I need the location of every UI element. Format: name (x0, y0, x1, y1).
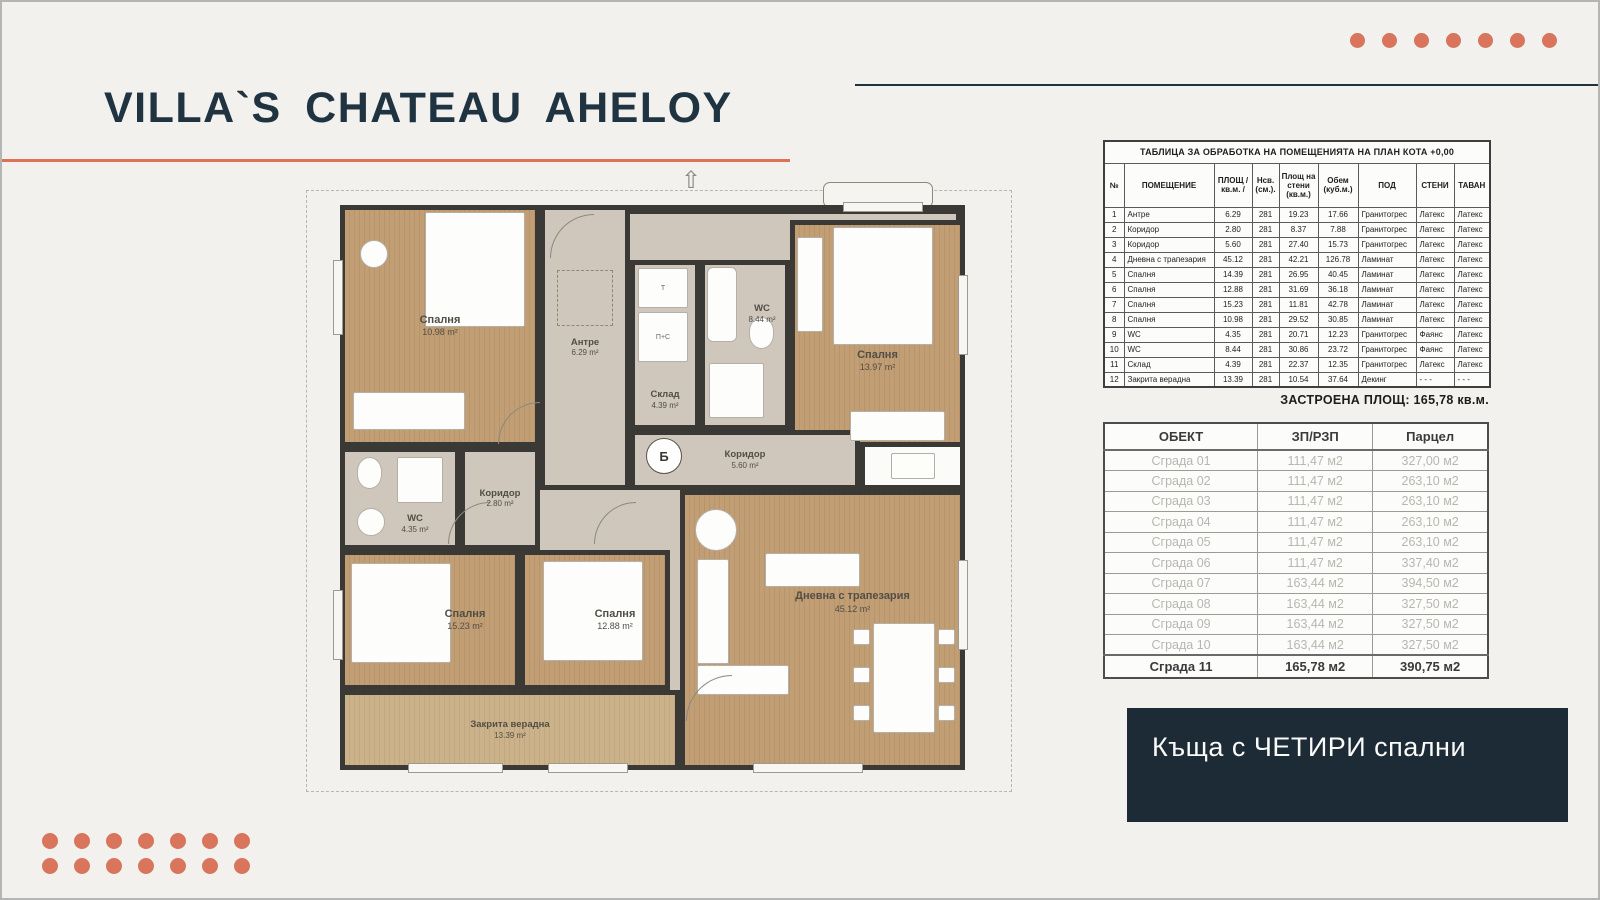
toilet (749, 317, 774, 349)
cell-height: 281 (1252, 342, 1279, 357)
room-finish-table: ТАБЛИЦА ЗА ОБРАБОТКА НА ПОМЕЩЕНИЯТА НА П… (1103, 140, 1491, 388)
cell-volume: 12.23 (1318, 327, 1358, 342)
table-row: 1 Антре 6.29 281 19.23 17.66 Гранитогрес… (1104, 207, 1490, 222)
cell-ceiling-finish: Латекс (1454, 252, 1490, 267)
cell-plot-area: 263,10 м2 (1373, 471, 1488, 492)
cell-building: Сграда 10 (1104, 635, 1258, 656)
cell-wall-area: 8.37 (1279, 222, 1318, 237)
cell-height: 281 (1252, 207, 1279, 222)
cell-ceiling-finish: Латекс (1454, 297, 1490, 312)
room-storage: Т П+С Склад4.39 m² (630, 260, 700, 430)
cell-room: Спалня (1124, 267, 1214, 282)
room-name: Коридор (480, 488, 521, 500)
double-bed (833, 227, 933, 345)
stool (360, 240, 388, 268)
buildings-table-section: ОБЕКТ ЗП/РЗП Парцел Сграда 01 111,47 м2 … (1103, 422, 1489, 679)
table-row: Сграда 07 163,44 м2 394,50 м2 (1104, 573, 1488, 594)
table-title: ТАБЛИЦА ЗА ОБРАБОТКА НА ПОМЕЩЕНИЯТА НА П… (1104, 141, 1490, 163)
cell-ceiling-finish: Латекс (1454, 207, 1490, 222)
bed (425, 212, 525, 327)
cell-built-area: 163,44 м2 (1258, 635, 1373, 656)
cell-height: 281 (1252, 282, 1279, 297)
decorative-dot (1510, 33, 1525, 48)
room-area: 4.39 m² (651, 401, 678, 411)
chair (853, 667, 870, 683)
cell-plot-area: 263,10 м2 (1373, 491, 1488, 512)
tagline-text: Къща с ЧЕТИРИ спални (1127, 708, 1568, 763)
room-name: Склад (650, 389, 679, 401)
room-area: 13.39 m² (494, 731, 526, 741)
cell-floor-finish: Гранитогрес (1358, 207, 1416, 222)
cell-building: Сграда 07 (1104, 573, 1258, 594)
cell-height: 281 (1252, 327, 1279, 342)
cell-ceiling-finish: Латекс (1454, 357, 1490, 372)
cell-wall-finish: Латекс (1416, 282, 1454, 297)
cell-floor-finish: Гранитогрес (1358, 327, 1416, 342)
room-bedroom-1: Спалня10.98 m² (340, 205, 540, 447)
cell-volume: 36.18 (1318, 282, 1358, 297)
chair (853, 705, 870, 721)
table-row: 11 Склад 4.39 281 22.37 12.35 Гранитогре… (1104, 357, 1490, 372)
room-area: 4.35 m² (401, 525, 428, 535)
cell-wall-area: 31.69 (1279, 282, 1318, 297)
wardrobe (353, 392, 465, 430)
cell-wall-finish: Латекс (1416, 222, 1454, 237)
cell-wall-area: 20.71 (1279, 327, 1318, 342)
table-row: Сграда 09 163,44 м2 327,50 м2 (1104, 614, 1488, 635)
cell-number: 12 (1104, 372, 1124, 387)
cell-plot-area: 263,10 м2 (1373, 512, 1488, 533)
cell-ceiling-finish: Латекс (1454, 312, 1490, 327)
cell-ceiling-finish: Латекс (1454, 237, 1490, 252)
cell-ceiling-finish: Латекс (1454, 282, 1490, 297)
cell-number: 2 (1104, 222, 1124, 237)
decorative-dot (106, 833, 122, 849)
armchair (695, 509, 737, 551)
cell-built-area: 163,44 м2 (1258, 573, 1373, 594)
decorative-dot (1350, 33, 1365, 48)
north-arrow-icon: ⇧ (681, 166, 701, 195)
decorative-dot (202, 858, 218, 874)
room-area: 45.12 m² (835, 604, 871, 615)
cell-built-area: 163,44 м2 (1258, 614, 1373, 635)
decorative-dot (42, 858, 58, 874)
cell-floor-finish: Ламинат (1358, 267, 1416, 282)
room-covered-veranda: Закрита верадна13.39 m² (340, 690, 680, 770)
title-underline (0, 159, 790, 162)
cell-area: 45.12 (1214, 252, 1252, 267)
table-row: Сграда 05 111,47 м2 263,10 м2 (1104, 532, 1488, 553)
cell-area: 4.35 (1214, 327, 1252, 342)
cell-number: 6 (1104, 282, 1124, 297)
dining-table (873, 623, 935, 733)
column-header: ОБЕКТ (1104, 423, 1258, 450)
decorative-dot (138, 858, 154, 874)
table-row: 10 WC 8.44 281 30.86 23.72 Гранитогрес Ф… (1104, 342, 1490, 357)
room-area: 13.97 m² (860, 362, 896, 373)
cell-plot-area: 337,40 м2 (1373, 553, 1488, 574)
table-row: Сграда 02 111,47 м2 263,10 м2 (1104, 471, 1488, 492)
cell-number: 3 (1104, 237, 1124, 252)
cell-ceiling-finish: Латекс (1454, 327, 1490, 342)
cell-building: Сграда 06 (1104, 553, 1258, 574)
window (333, 260, 343, 335)
decorative-dot (106, 858, 122, 874)
room-name: Спалня (857, 349, 898, 363)
cell-number: 9 (1104, 327, 1124, 342)
cell-area: 15.23 (1214, 297, 1252, 312)
cell-room: WC (1124, 342, 1214, 357)
table-header-row: №ПОМЕЩЕНИЕПЛОЩ / кв.м. /Нсв. (см.).Площ … (1104, 163, 1490, 207)
window (408, 763, 503, 773)
table-row: 6 Спалня 12.88 281 31.69 36.18 Ламинат Л… (1104, 282, 1490, 297)
cell-built-area: 163,44 м2 (1258, 594, 1373, 615)
decorative-dot (234, 833, 250, 849)
room-living-dining: Дневна с трапезария45.12 m² (680, 490, 965, 770)
decorative-dot (74, 833, 90, 849)
room-name: Коридор (725, 449, 766, 461)
cell-height: 281 (1252, 372, 1279, 387)
table-row: 2 Коридор 2.80 281 8.37 7.88 Гранитогрес… (1104, 222, 1490, 237)
decorative-dot (170, 858, 186, 874)
cell-building: Сграда 02 (1104, 471, 1258, 492)
closet: Т (638, 268, 688, 308)
cell-room: Коридор (1124, 237, 1214, 252)
cell-plot-area: 263,10 м2 (1373, 532, 1488, 553)
chair (938, 705, 955, 721)
cell-area: 14.39 (1214, 267, 1252, 282)
cell-plot-area: 327,50 м2 (1373, 614, 1488, 635)
room-name: Дневна с трапезария (795, 590, 910, 604)
table-header-row: ОБЕКТ ЗП/РЗП Парцел (1104, 423, 1488, 450)
cell-volume: 23.72 (1318, 342, 1358, 357)
room-finish-table-section: ТАБЛИЦА ЗА ОБРАБОТКА НА ПОМЕЩЕНИЯТА НА П… (1103, 140, 1489, 407)
room-area: 10.98 m² (422, 327, 458, 338)
built-area-total: ЗАСТРОЕНА ПЛОЩ: 165,78 кв.м. (1103, 393, 1489, 407)
floor-plan: ⇧ Спалня10.98 m² Антре6.29 m² Т П+С Скла… (298, 170, 1046, 812)
room-area: 6.29 m² (571, 348, 598, 358)
column-header: ПЛОЩ / кв.м. / (1214, 163, 1252, 207)
cell-floor-finish: Ламинат (1358, 312, 1416, 327)
room-area: 15.23 m² (447, 621, 483, 632)
room-name: WC (754, 303, 770, 315)
cell-building: Сграда 01 (1104, 450, 1258, 471)
column-header: № (1104, 163, 1124, 207)
room-name: WC (407, 513, 423, 525)
cell-built-area: 165,78 м2 (1258, 655, 1373, 678)
cell-wall-area: 42.21 (1279, 252, 1318, 267)
cell-building: Сграда 03 (1104, 491, 1258, 512)
cell-building: Сграда 04 (1104, 512, 1258, 533)
kitchen-island (765, 553, 860, 587)
cell-room: Закрита верадна (1124, 372, 1214, 387)
decorative-dot (234, 858, 250, 874)
cell-volume: 17.66 (1318, 207, 1358, 222)
toilet (357, 457, 382, 489)
cell-room: Склад (1124, 357, 1214, 372)
cell-area: 2.80 (1214, 222, 1252, 237)
cell-wall-area: 26.95 (1279, 267, 1318, 282)
cell-building: Сграда 11 (1104, 655, 1258, 678)
cell-area: 13.39 (1214, 372, 1252, 387)
cell-area: 5.60 (1214, 237, 1252, 252)
slide: { "page": { "title": "VILLA`S CHATEAU AH… (0, 0, 1600, 900)
cell-area: 4.39 (1214, 357, 1252, 372)
window (843, 202, 923, 212)
cell-wall-finish: Латекс (1416, 252, 1454, 267)
cell-ceiling-finish: Латекс (1454, 222, 1490, 237)
decorative-dot (1542, 33, 1557, 48)
shower (709, 363, 764, 418)
decorative-dot (138, 833, 154, 849)
cell-height: 281 (1252, 297, 1279, 312)
cell-ceiling-finish: - - - (1454, 372, 1490, 387)
cell-height: 281 (1252, 267, 1279, 282)
cell-built-area: 111,47 м2 (1258, 512, 1373, 533)
header-rule (855, 84, 1600, 86)
page-title: VILLA`S CHATEAU AHELOY (104, 84, 733, 133)
table-row: 7 Спалня 15.23 281 11.81 42.78 Ламинат Л… (1104, 297, 1490, 312)
table-row: Сграда 01 111,47 м2 327,00 м2 (1104, 450, 1488, 471)
table-row: 3 Коридор 5.60 281 27.40 15.73 Гранитогр… (1104, 237, 1490, 252)
cell-wall-area: 19.23 (1279, 207, 1318, 222)
table-row: 12 Закрита верадна 13.39 281 10.54 37.64… (1104, 372, 1490, 387)
cell-wall-finish: Фаянс (1416, 327, 1454, 342)
chair (853, 629, 870, 645)
table-row: 5 Спалня 14.39 281 26.95 40.45 Ламинат Л… (1104, 267, 1490, 282)
room-bathroom-main: WC8.44 m² (700, 260, 790, 430)
window (333, 590, 343, 660)
column-header: ПОД (1358, 163, 1416, 207)
column-header: ТАВАН (1454, 163, 1490, 207)
cell-volume: 37.64 (1318, 372, 1358, 387)
column-header: ПОМЕЩЕНИЕ (1124, 163, 1214, 207)
cell-number: 10 (1104, 342, 1124, 357)
cell-room: Спалня (1124, 297, 1214, 312)
cell-volume: 12.35 (1318, 357, 1358, 372)
closet: П+С (638, 312, 688, 362)
cell-volume: 40.45 (1318, 267, 1358, 282)
tagline-box: Къща с ЧЕТИРИ спални (1127, 708, 1568, 822)
wardrobe (797, 237, 823, 332)
cell-plot-area: 394,50 м2 (1373, 573, 1488, 594)
dot-row (42, 858, 250, 874)
cell-ceiling-finish: Латекс (1454, 267, 1490, 282)
cell-plot-area: 327,50 м2 (1373, 635, 1488, 656)
bathtub (707, 267, 737, 342)
cell-plot-area: 327,00 м2 (1373, 450, 1488, 471)
decorative-dot (42, 833, 58, 849)
cell-volume: 15.73 (1318, 237, 1358, 252)
table-row: Сграда 08 163,44 м2 327,50 м2 (1104, 594, 1488, 615)
kitchen-sink (891, 453, 935, 479)
cell-building: Сграда 09 (1104, 614, 1258, 635)
cell-wall-area: 10.54 (1279, 372, 1318, 387)
table-row-highlighted: Сграда 11 165,78 м2 390,75 м2 (1104, 655, 1488, 678)
cell-wall-finish: Латекс (1416, 267, 1454, 282)
room-bedroom-4: Спалня13.97 m² (790, 220, 965, 450)
room-area: 2.80 m² (486, 499, 513, 509)
sliding-door (753, 763, 863, 773)
double-bed (351, 563, 451, 663)
cell-room: Дневна с трапезария (1124, 252, 1214, 267)
cell-height: 281 (1252, 312, 1279, 327)
table-row: Сграда 06 111,47 м2 337,40 м2 (1104, 553, 1488, 574)
table-row: Сграда 03 111,47 м2 263,10 м2 (1104, 491, 1488, 512)
cell-number: 4 (1104, 252, 1124, 267)
decorative-dot (202, 833, 218, 849)
cell-floor-finish: Декинг (1358, 372, 1416, 387)
cell-room: Спалня (1124, 312, 1214, 327)
room-name: Антре (571, 337, 599, 349)
cell-area: 10.98 (1214, 312, 1252, 327)
table-row: Сграда 04 111,47 м2 263,10 м2 (1104, 512, 1488, 533)
boiler-symbol: Б (646, 438, 682, 474)
cell-area: 6.29 (1214, 207, 1252, 222)
entry-mat (557, 270, 613, 326)
cell-height: 281 (1252, 357, 1279, 372)
cell-floor-finish: Ламинат (1358, 252, 1416, 267)
chair (938, 629, 955, 645)
cell-height: 281 (1252, 237, 1279, 252)
room-bedroom-2: Спалня15.23 m² (340, 550, 520, 690)
column-header: Площ на стени (кв.м.) (1279, 163, 1318, 207)
cell-ceiling-finish: Латекс (1454, 342, 1490, 357)
cell-wall-area: 30.86 (1279, 342, 1318, 357)
window (958, 560, 968, 650)
cell-floor-finish: Гранитогрес (1358, 342, 1416, 357)
cell-volume: 42.78 (1318, 297, 1358, 312)
window (548, 763, 628, 773)
column-header: СТЕНИ (1416, 163, 1454, 207)
cell-building: Сграда 08 (1104, 594, 1258, 615)
cell-built-area: 111,47 м2 (1258, 450, 1373, 471)
column-header: Обем (куб.м.) (1318, 163, 1358, 207)
cell-building: Сграда 05 (1104, 532, 1258, 553)
cell-wall-finish: Латекс (1416, 357, 1454, 372)
cell-height: 281 (1252, 222, 1279, 237)
decorative-dot (170, 833, 186, 849)
cell-number: 8 (1104, 312, 1124, 327)
cell-built-area: 111,47 м2 (1258, 532, 1373, 553)
cell-wall-finish: Латекс (1416, 237, 1454, 252)
cell-floor-finish: Ламинат (1358, 282, 1416, 297)
room-name: Закрита верадна (470, 719, 549, 731)
cell-built-area: 111,47 м2 (1258, 553, 1373, 574)
decorative-dot (74, 858, 90, 874)
dot-grid-bottom-left (42, 833, 250, 874)
cell-floor-finish: Гранитогрес (1358, 357, 1416, 372)
washbasin (357, 508, 385, 536)
cell-wall-area: 29.52 (1279, 312, 1318, 327)
cell-area: 12.88 (1214, 282, 1252, 297)
cell-room: Спалня (1124, 282, 1214, 297)
column-header: Нсв. (см.). (1252, 163, 1279, 207)
cell-room: Антре (1124, 207, 1214, 222)
decorative-dot (1446, 33, 1461, 48)
desk (850, 411, 945, 441)
cell-number: 5 (1104, 267, 1124, 282)
cell-floor-finish: Ламинат (1358, 297, 1416, 312)
sofa (697, 559, 729, 664)
room-bedroom-3: Спалня12.88 m² (520, 550, 670, 690)
cell-wall-finish: Латекс (1416, 207, 1454, 222)
cell-plot-area: 390,75 м2 (1373, 655, 1488, 678)
cell-room: Коридор (1124, 222, 1214, 237)
cell-wall-area: 11.81 (1279, 297, 1318, 312)
chair (938, 667, 955, 683)
cell-number: 7 (1104, 297, 1124, 312)
column-header: ЗП/РЗП (1258, 423, 1373, 450)
cell-floor-finish: Гранитогрес (1358, 222, 1416, 237)
decorative-dot (1478, 33, 1493, 48)
cell-built-area: 111,47 м2 (1258, 491, 1373, 512)
kitchen-counter (860, 442, 965, 490)
table-row: 8 Спалня 10.98 281 29.52 30.85 Ламинат Л… (1104, 312, 1490, 327)
room-area: 5.60 m² (731, 461, 758, 471)
cell-area: 8.44 (1214, 342, 1252, 357)
dot-grid-top-right (1350, 33, 1557, 48)
decorative-dot (1382, 33, 1397, 48)
window (958, 275, 968, 355)
cell-height: 281 (1252, 252, 1279, 267)
decorative-dot (1414, 33, 1429, 48)
room-bathroom-small: WC4.35 m² (340, 447, 460, 550)
buildings-table: ОБЕКТ ЗП/РЗП Парцел Сграда 01 111,47 м2 … (1103, 422, 1489, 679)
cell-wall-finish: - - - (1416, 372, 1454, 387)
cell-number: 1 (1104, 207, 1124, 222)
cell-wall-area: 22.37 (1279, 357, 1318, 372)
dot-row (42, 833, 250, 849)
cell-volume: 30.85 (1318, 312, 1358, 327)
double-bed (543, 561, 643, 661)
cell-wall-finish: Фаянс (1416, 342, 1454, 357)
cell-built-area: 111,47 м2 (1258, 471, 1373, 492)
column-header: Парцел (1373, 423, 1488, 450)
table-row: Сграда 10 163,44 м2 327,50 м2 (1104, 635, 1488, 656)
table-row: 4 Дневна с трапезария 45.12 281 42.21 12… (1104, 252, 1490, 267)
cell-room: WC (1124, 327, 1214, 342)
cell-wall-finish: Латекс (1416, 312, 1454, 327)
cell-volume: 7.88 (1318, 222, 1358, 237)
cell-wall-finish: Латекс (1416, 297, 1454, 312)
cell-volume: 126.78 (1318, 252, 1358, 267)
cell-wall-area: 27.40 (1279, 237, 1318, 252)
sink-cabinet (397, 457, 443, 503)
table-row: 9 WC 4.35 281 20.71 12.23 Гранитогрес Фа… (1104, 327, 1490, 342)
cell-number: 11 (1104, 357, 1124, 372)
cell-plot-area: 327,50 м2 (1373, 594, 1488, 615)
cell-floor-finish: Гранитогрес (1358, 237, 1416, 252)
